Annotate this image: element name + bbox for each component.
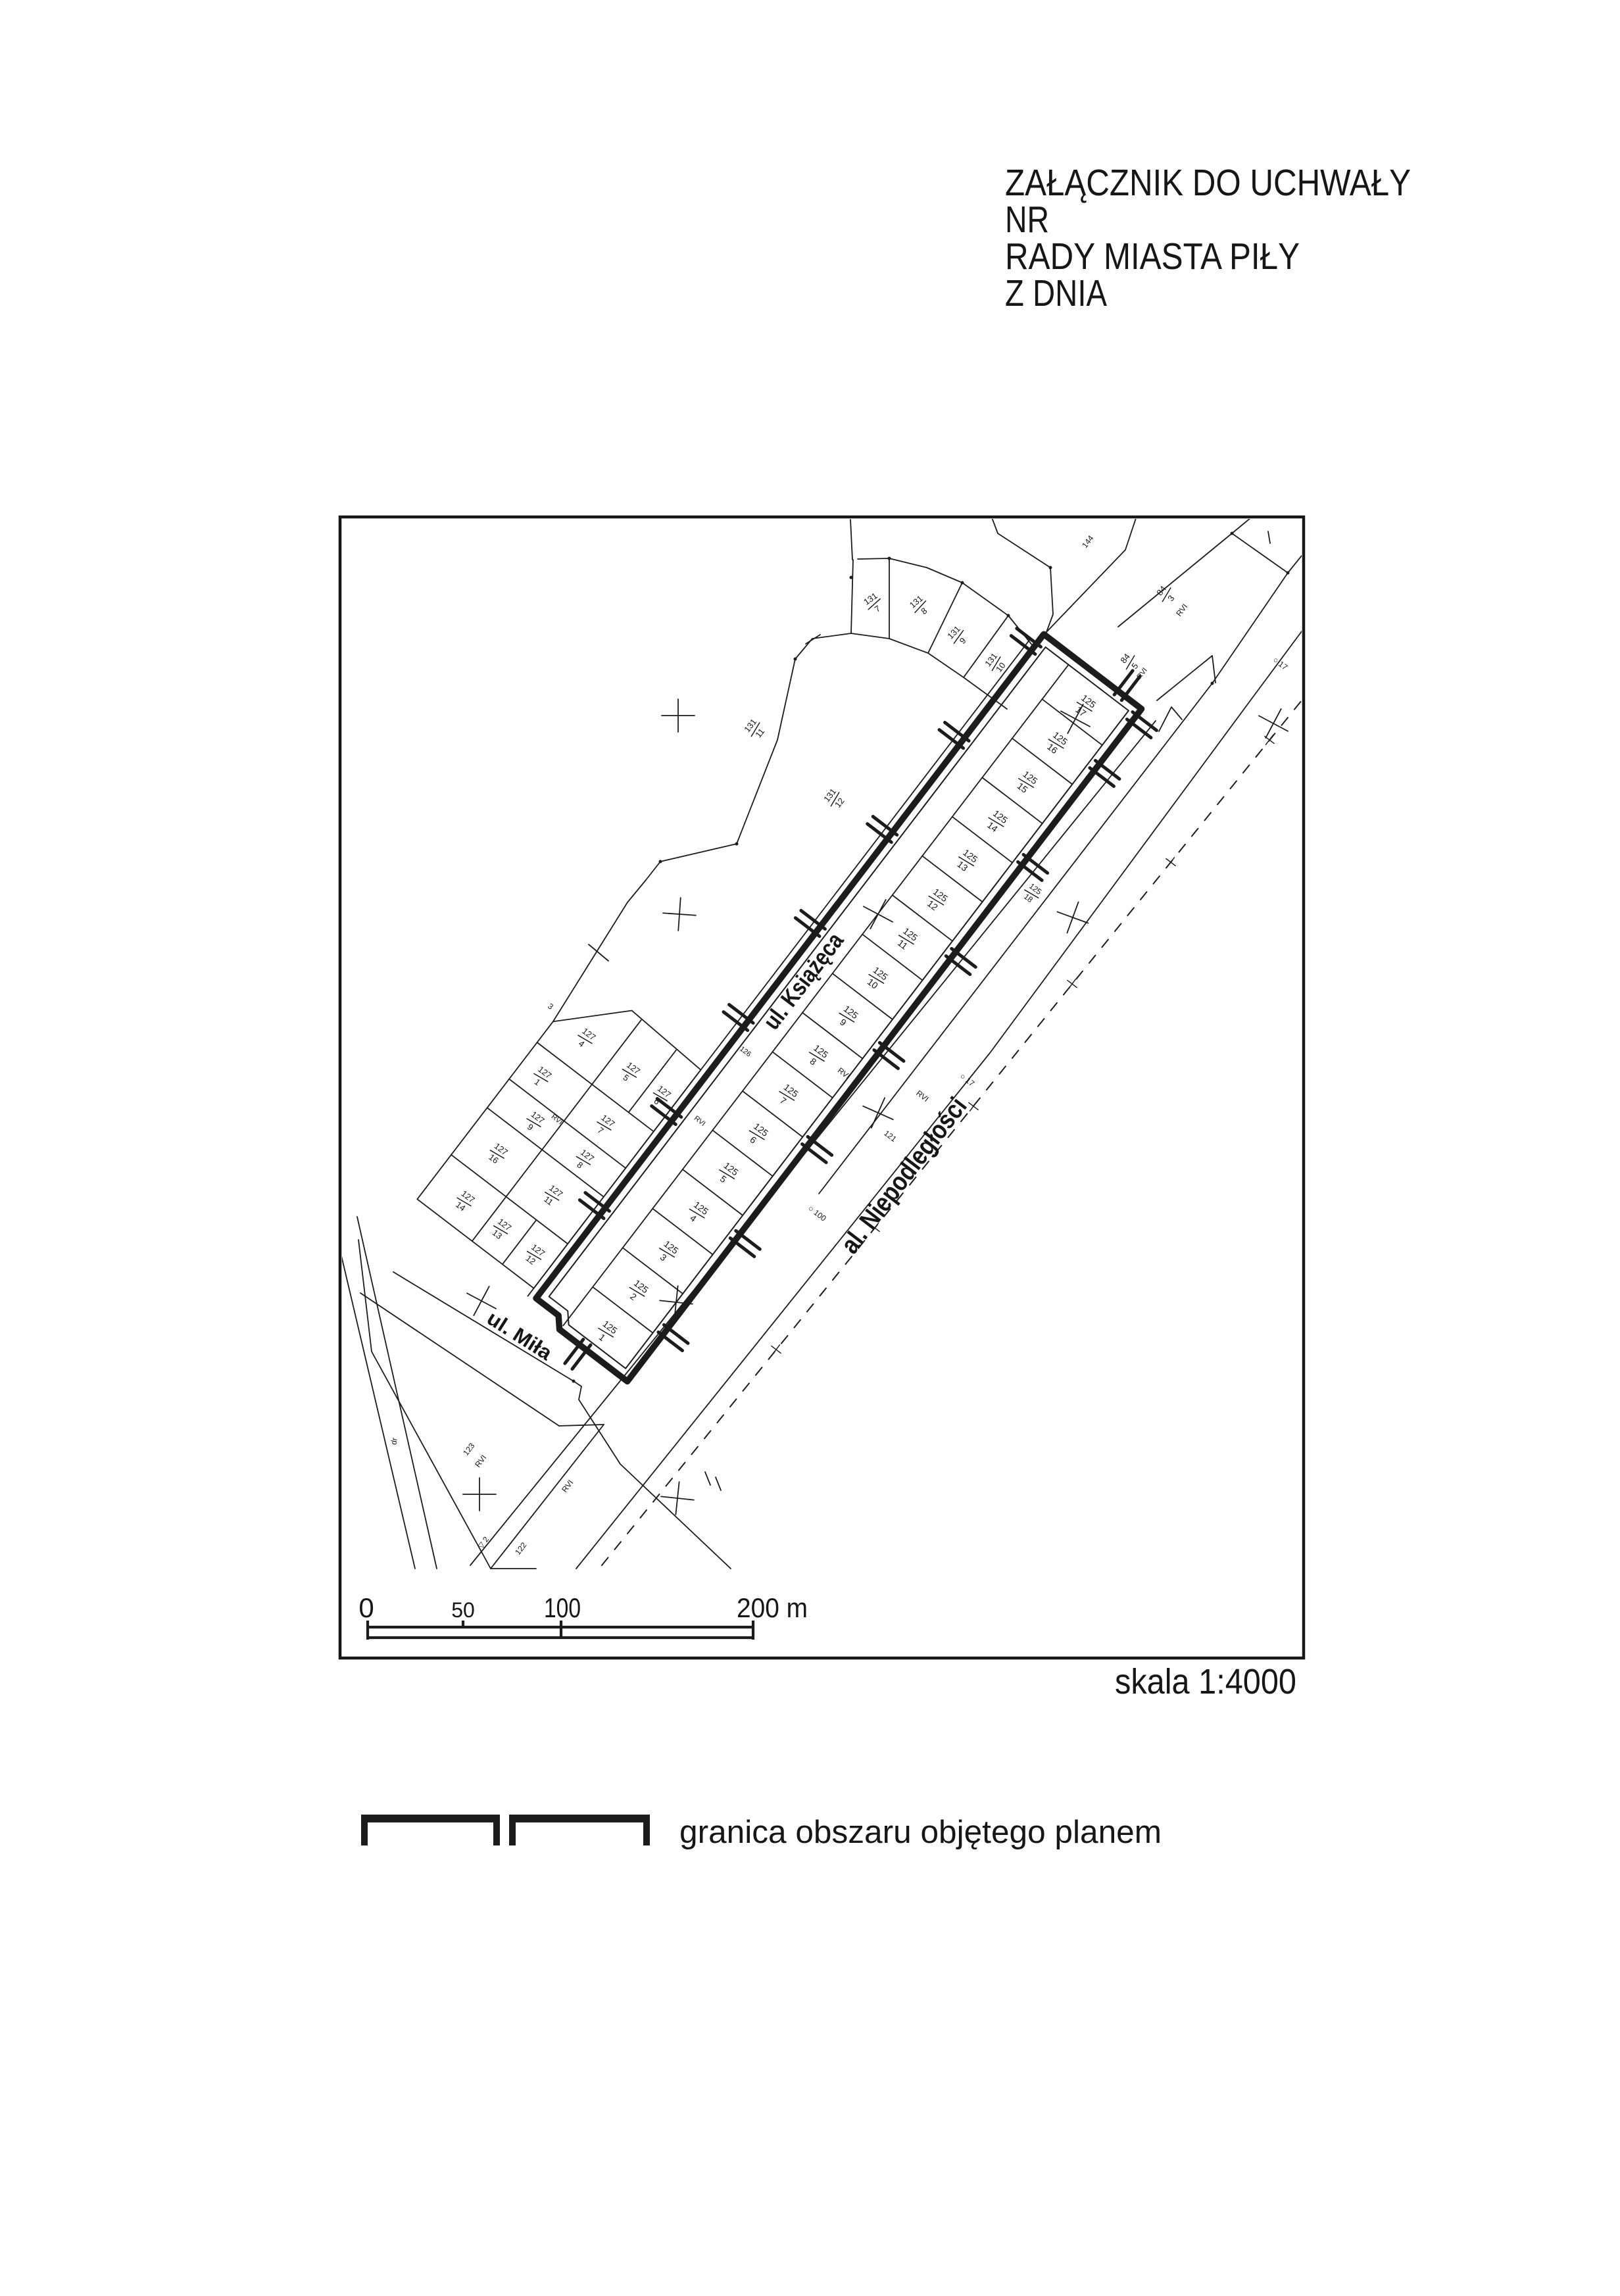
- svg-text:skala 1:4000: skala 1:4000: [1115, 1662, 1296, 1701]
- svg-text:200 m: 200 m: [737, 1592, 808, 1623]
- svg-text:0: 0: [358, 1592, 374, 1623]
- svg-text:RADY MIASTA PIŁY: RADY MIASTA PIŁY: [1005, 235, 1300, 278]
- svg-text:NR: NR: [1005, 199, 1049, 241]
- svg-text:100: 100: [544, 1592, 581, 1623]
- svg-text:Z DNIA: Z DNIA: [1005, 272, 1107, 314]
- svg-text:ZAŁĄCZNIK DO UCHWAŁY: ZAŁĄCZNIK DO UCHWAŁY: [1005, 162, 1411, 204]
- svg-text:granica obszaru objętego plane: granica obszaru objętego planem: [679, 1815, 1162, 1850]
- svg-text:50: 50: [451, 1598, 475, 1622]
